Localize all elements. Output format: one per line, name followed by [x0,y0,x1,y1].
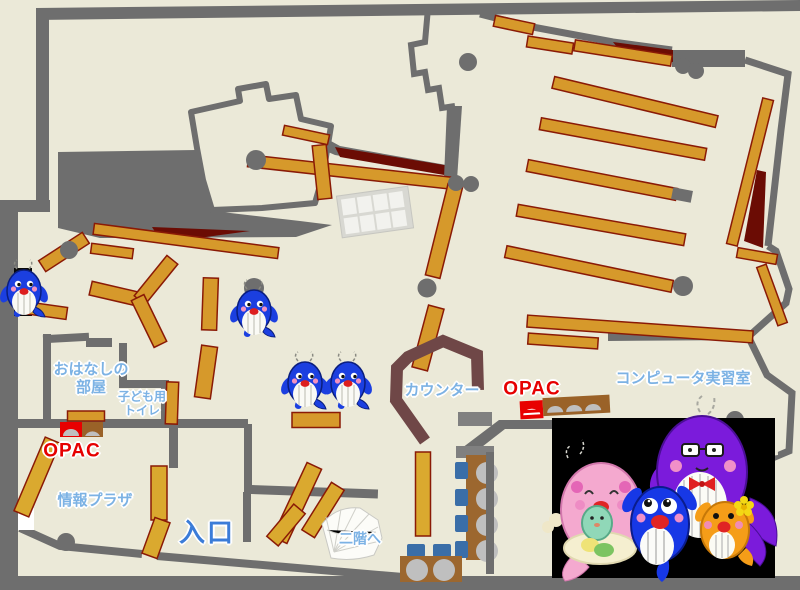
label-kids-toilet: 子ども用 トイレ [118,390,166,419]
label-computer-room: コンピュータ実習室 [615,370,750,388]
opac-terminal-left [60,422,103,437]
whale-family-illustration [542,396,777,582]
label-to-second-floor: 二階へ [339,531,381,548]
spout-above-box [697,396,714,414]
label-info-plaza: 情報プラザ [57,492,132,510]
whale-mascot-icon [322,352,375,409]
small-room [191,84,331,210]
label-opac-left: OPAC [43,441,100,464]
label-entrance: 入口 [179,517,235,548]
whale-mascot-icon [279,352,332,409]
label-opac-right: OPAC [503,379,560,402]
counter-desk [458,412,492,426]
label-counter: カウンター [404,382,479,400]
reading-tables [336,186,413,238]
computer-desks [400,446,498,582]
library-floor-map: おはなしの 部屋 子ども用 トイレ OPAC 情報プラザ 入口 二階へ カウンタ… [0,0,800,590]
